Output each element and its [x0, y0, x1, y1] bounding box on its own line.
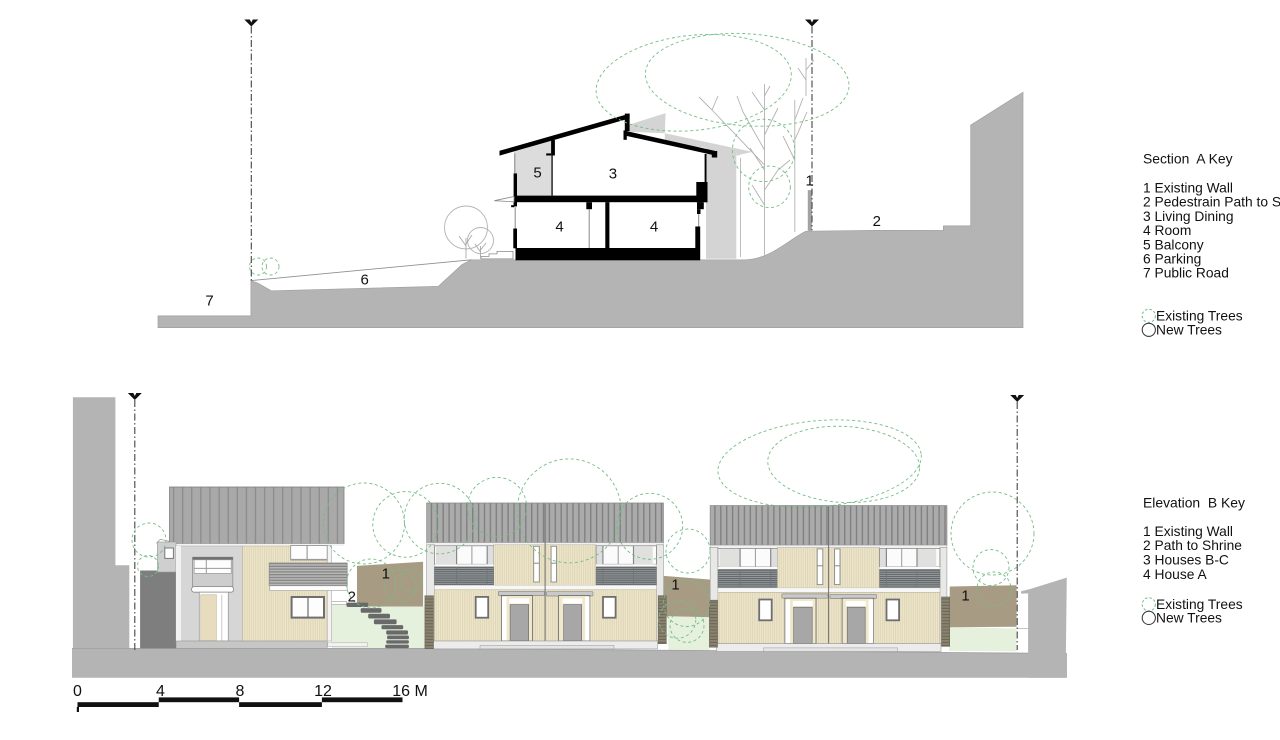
- svg-text:1: 1: [382, 566, 390, 583]
- svg-text:12: 12: [314, 683, 332, 700]
- svg-text:Section A Key: Section A Key: [1143, 151, 1233, 167]
- svg-text:16 M: 16 M: [392, 683, 428, 700]
- svg-text:0: 0: [73, 683, 82, 700]
- svg-text:Existing Trees: Existing Trees: [1156, 308, 1243, 323]
- svg-text:3: 3: [609, 165, 617, 182]
- svg-text:2: 2: [348, 589, 356, 606]
- svg-text:1 Existing Wall: 1 Existing Wall: [1143, 181, 1233, 196]
- svg-text:New Trees: New Trees: [1156, 610, 1222, 625]
- svg-text:4: 4: [555, 218, 563, 235]
- svg-text:6: 6: [361, 271, 369, 288]
- svg-text:1: 1: [961, 588, 969, 605]
- svg-text:8: 8: [236, 683, 245, 700]
- svg-text:7: 7: [205, 293, 213, 310]
- svg-text:5: 5: [533, 165, 541, 182]
- svg-text:4: 4: [156, 683, 165, 700]
- svg-text:1: 1: [806, 172, 814, 189]
- svg-text:4 Room: 4 Room: [1143, 223, 1191, 238]
- svg-text:4 House A: 4 House A: [1143, 567, 1207, 582]
- svg-text:2 Path to Shrine: 2 Path to Shrine: [1143, 538, 1242, 553]
- svg-text:5 Balcony: 5 Balcony: [1143, 237, 1204, 252]
- svg-text:2: 2: [873, 213, 881, 230]
- svg-text:New Trees: New Trees: [1156, 322, 1222, 337]
- svg-text:3 Living Dining: 3 Living Dining: [1143, 209, 1234, 224]
- svg-text:2 Pedestrain Path to Shrine: 2 Pedestrain Path to Shrine: [1143, 195, 1280, 210]
- svg-text:7 Public Road: 7 Public Road: [1143, 266, 1229, 281]
- svg-text:Elevation B Key: Elevation B Key: [1143, 495, 1245, 511]
- svg-text:3 Houses B-C: 3 Houses B-C: [1143, 553, 1229, 568]
- svg-text:1: 1: [671, 577, 679, 594]
- svg-text:6 Parking: 6 Parking: [1143, 252, 1201, 267]
- svg-text:1 Existing Wall: 1 Existing Wall: [1143, 524, 1233, 539]
- svg-text:4: 4: [650, 218, 658, 235]
